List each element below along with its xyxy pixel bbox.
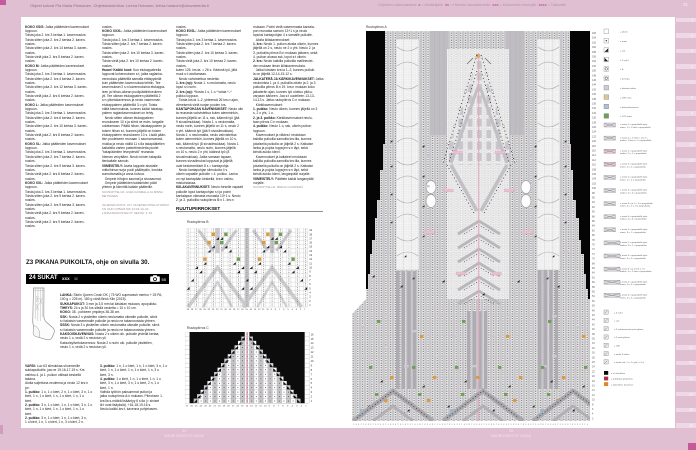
svg-text:3: 3 <box>311 390 313 394</box>
svg-text:eteen, 2 o, 2 s apupuikolta: eteen, 2 o, 2 s apupuikolta <box>620 165 646 168</box>
svg-text:6: 6 <box>548 424 549 425</box>
svg-text:5: 5 <box>427 424 428 425</box>
svg-text:8: 8 <box>493 424 494 425</box>
svg-text:7: 7 <box>311 372 313 376</box>
svg-text:20: 20 <box>592 375 595 378</box>
svg-text:0: 0 <box>538 424 539 425</box>
svg-text:12: 12 <box>255 405 258 407</box>
svg-text:= nosta 3 s ja 1 kert o, 3 s: = nosta 3 s ja 1 kert o, 3 s <box>620 267 646 270</box>
svg-text:9: 9 <box>516 424 517 425</box>
svg-text:8: 8 <box>395 424 396 425</box>
svg-text:78: 78 <box>592 239 595 242</box>
svg-text:21: 21 <box>220 309 223 311</box>
svg-text:8: 8 <box>592 403 594 406</box>
svg-text:2: 2 <box>309 298 311 302</box>
svg-text:6: 6 <box>572 424 573 425</box>
svg-text:2: 2 <box>484 424 485 425</box>
svg-text:8: 8 <box>309 273 311 277</box>
svg-text:9: 9 <box>417 424 418 425</box>
svg-text:166: 166 <box>592 32 597 35</box>
svg-text:taakse, 4 o, 4 s apupuikolta: taakse, 4 o, 4 s apupuikolta <box>620 218 647 221</box>
svg-text:6: 6 <box>283 309 285 311</box>
svg-text:6: 6 <box>425 424 426 425</box>
svg-text:72: 72 <box>592 253 595 256</box>
svg-text:eteen, 4 o, 4 s apupuikolta: eteen, 4 o, 4 s apupuikolta <box>620 283 646 286</box>
svg-text:1: 1 <box>305 405 307 407</box>
svg-text:= neulo 3 oikein: = neulo 3 oikein <box>614 354 630 356</box>
svg-text:= lk, linjas: = lk, linjas <box>620 79 631 81</box>
svg-text:7: 7 <box>545 424 546 425</box>
svg-text:= nosta 4 s apupuikolle työn: = nosta 4 s apupuikolle työn <box>620 215 648 218</box>
svg-text:22: 22 <box>592 370 595 373</box>
svg-text:2: 2 <box>557 424 558 425</box>
svg-text:9: 9 <box>311 363 313 367</box>
svg-text:16: 16 <box>311 332 314 336</box>
svg-text:146: 146 <box>592 79 597 82</box>
svg-text:142: 142 <box>592 88 597 91</box>
svg-text:0: 0 <box>489 424 490 425</box>
svg-text:= nosta 2 s, 1 kiert o, ota 2: = nosta 2 s, 1 kiert o, ota 2 s <box>620 136 648 139</box>
svg-text:26: 26 <box>199 309 202 311</box>
svg-text:= nosta 2 s apupuikolle työn: = nosta 2 s apupuikolle työn <box>620 176 648 179</box>
svg-text:= LSF nurin: = LSF nurin <box>620 96 632 99</box>
svg-text:52: 52 <box>592 300 595 303</box>
svg-text:= nosta 3 s apupuikolle työn: = nosta 3 s apupuikolle työn <box>620 254 648 257</box>
svg-text:132: 132 <box>592 112 597 115</box>
svg-text:46: 46 <box>592 314 595 317</box>
svg-text:104: 104 <box>592 178 597 181</box>
svg-text:= nurin: = nurin <box>620 40 628 43</box>
svg-text:16: 16 <box>236 405 239 407</box>
svg-text:13: 13 <box>311 345 314 349</box>
svg-text:15: 15 <box>241 405 244 407</box>
svg-text:27: 27 <box>186 405 189 407</box>
svg-text:144: 144 <box>592 84 597 87</box>
svg-text:= LSD: = LSD <box>614 346 621 348</box>
svg-text:1: 1 <box>412 424 413 425</box>
svg-text:0: 0 <box>587 424 588 425</box>
svg-text:4: 4 <box>528 424 529 425</box>
svg-text:17: 17 <box>237 309 240 311</box>
svg-text:11: 11 <box>309 261 312 265</box>
svg-text:122: 122 <box>592 135 597 138</box>
svg-text:8: 8 <box>543 424 544 425</box>
svg-text:9: 9 <box>565 424 566 425</box>
svg-text:70: 70 <box>592 258 595 261</box>
svg-text:4: 4 <box>479 424 480 425</box>
svg-text:27: 27 <box>195 309 198 311</box>
svg-text:7: 7 <box>398 424 399 425</box>
svg-text:2: 2 <box>385 424 386 425</box>
svg-text:74: 74 <box>592 248 595 251</box>
svg-text:26: 26 <box>190 405 193 407</box>
svg-text:= kaksoiskavennus: = kaksoiskavennus <box>620 107 639 109</box>
svg-text:164: 164 <box>592 37 597 40</box>
svg-text:3: 3 <box>296 405 298 407</box>
svg-text:0: 0 <box>464 424 465 425</box>
svg-text:136: 136 <box>592 103 597 106</box>
svg-text:28: 28 <box>191 309 194 311</box>
svg-text:34: 34 <box>592 342 595 345</box>
svg-text:17: 17 <box>309 236 312 240</box>
svg-text:= kaksinkert. kavennus: = kaksinkert. kavennus <box>611 383 634 386</box>
svg-text:90: 90 <box>592 211 595 214</box>
svg-text:5: 5 <box>309 286 311 290</box>
svg-text:92: 92 <box>592 206 595 209</box>
svg-text:7: 7 <box>373 424 374 425</box>
svg-text:1: 1 <box>511 424 512 425</box>
svg-text:24: 24 <box>592 366 595 369</box>
svg-text:1: 1 <box>437 424 438 425</box>
svg-text:1: 1 <box>535 424 536 425</box>
svg-text:114: 114 <box>592 154 596 157</box>
svg-text:158: 158 <box>592 51 597 54</box>
svg-text:24: 24 <box>208 309 211 311</box>
svg-text:9: 9 <box>368 424 369 425</box>
svg-text:3: 3 <box>530 424 531 425</box>
svg-text:126: 126 <box>592 126 597 129</box>
svg-text:15: 15 <box>309 244 312 248</box>
svg-text:44: 44 <box>592 319 595 322</box>
svg-text:eteen, 1 o, 1 kiert o apupuiko: eteen, 1 o, 1 kiert o apupuikolta <box>620 126 651 129</box>
svg-text:162: 162 <box>592 41 597 44</box>
svg-text:7: 7 <box>278 405 280 407</box>
svg-text:14: 14 <box>592 389 595 392</box>
svg-text:58: 58 <box>592 286 595 289</box>
svg-text:4: 4 <box>430 424 431 425</box>
svg-text:18: 18 <box>227 405 230 407</box>
svg-text:128: 128 <box>592 121 597 124</box>
svg-text:5: 5 <box>575 424 576 425</box>
svg-text:eteen, 4 o, 3 s apupuikolta: eteen, 4 o, 3 s apupuikolta <box>620 296 646 299</box>
svg-text:18: 18 <box>592 380 595 383</box>
svg-text:24: 24 <box>200 405 203 407</box>
svg-text:94: 94 <box>592 201 595 204</box>
svg-text:12: 12 <box>258 309 261 311</box>
svg-text:29: 29 <box>187 309 190 311</box>
svg-text:42: 42 <box>592 323 595 326</box>
svg-text:12: 12 <box>309 257 312 261</box>
svg-text:54: 54 <box>592 295 595 298</box>
svg-text:96: 96 <box>592 197 595 200</box>
svg-text:5: 5 <box>287 405 289 407</box>
svg-text:4: 4 <box>309 290 311 294</box>
svg-text:6: 6 <box>474 424 475 425</box>
svg-text:88: 88 <box>592 215 595 218</box>
svg-text:9: 9 <box>442 424 443 425</box>
svg-text:19: 19 <box>309 228 312 232</box>
svg-text:5: 5 <box>311 381 313 385</box>
svg-text:160: 160 <box>592 46 597 49</box>
svg-text:80: 80 <box>592 234 595 237</box>
svg-text:50: 50 <box>592 305 595 308</box>
svg-text:102: 102 <box>592 182 597 185</box>
svg-text:= neulo ssk, 1 o, 2 o yht (+ 3: = neulo ssk, 1 o, 2 o yht (+ 3 s) <box>614 361 644 364</box>
svg-text:9: 9 <box>269 405 271 407</box>
svg-text:19: 19 <box>229 309 232 311</box>
svg-text:1: 1 <box>311 399 313 403</box>
svg-text:1: 1 <box>584 424 585 425</box>
svg-text:7: 7 <box>471 424 472 425</box>
svg-text:14: 14 <box>250 309 253 311</box>
svg-text:1: 1 <box>388 424 389 425</box>
svg-text:10: 10 <box>592 399 595 402</box>
svg-text:32: 32 <box>592 347 595 350</box>
svg-text:21: 21 <box>213 405 216 407</box>
svg-text:15: 15 <box>245 309 248 311</box>
svg-text:140: 140 <box>592 93 597 96</box>
svg-text:23: 23 <box>204 405 207 407</box>
svg-text:= nosta 3 s apupuikolle työn: = nosta 3 s apupuikolle työn <box>620 189 648 192</box>
svg-text:3: 3 <box>555 424 556 425</box>
svg-text:18: 18 <box>309 232 312 236</box>
svg-text:110: 110 <box>592 164 596 167</box>
svg-text:120: 120 <box>592 140 597 143</box>
svg-text:= 2 o yht: = 2 o yht <box>620 59 629 62</box>
svg-text:= oikein: = oikein <box>620 32 628 34</box>
svg-text:2: 2 <box>533 424 534 425</box>
svg-text:3: 3 <box>481 424 482 425</box>
svg-text:84: 84 <box>592 225 595 228</box>
svg-text:6: 6 <box>449 424 450 425</box>
svg-text:8: 8 <box>420 424 421 425</box>
svg-text:5: 5 <box>476 424 477 425</box>
svg-text:150: 150 <box>592 70 597 73</box>
svg-text:10: 10 <box>311 359 314 363</box>
svg-text:7: 7 <box>447 424 448 425</box>
svg-text:4: 4 <box>292 405 294 407</box>
svg-text:2: 2 <box>301 405 303 407</box>
svg-text:eteen, 3 o, 1 s apupuikolta: eteen, 3 o, 1 s apupuikolta <box>620 231 646 234</box>
svg-text:16: 16 <box>241 309 244 311</box>
svg-text:9: 9 <box>309 269 311 273</box>
svg-text:6: 6 <box>400 424 401 425</box>
svg-text:3: 3 <box>407 424 408 425</box>
svg-text:98: 98 <box>592 192 595 195</box>
svg-text:10: 10 <box>309 265 312 269</box>
svg-text:0: 0 <box>390 424 391 425</box>
svg-text:= nosta 4 s apupuikolle työn: = nosta 4 s apupuikolle työn <box>620 294 648 297</box>
svg-text:4: 4 <box>503 424 504 425</box>
svg-text:112: 112 <box>592 159 596 162</box>
svg-text:5: 5 <box>550 424 551 425</box>
svg-text:108: 108 <box>592 168 597 171</box>
svg-text:16: 16 <box>309 240 312 244</box>
svg-text:6: 6 <box>498 424 499 425</box>
svg-text:0: 0 <box>513 424 514 425</box>
svg-text:2: 2 <box>459 424 460 425</box>
svg-text:1: 1 <box>309 303 311 307</box>
svg-text:9: 9 <box>393 424 394 425</box>
svg-text:62: 62 <box>592 276 595 279</box>
svg-text:66: 66 <box>592 267 595 270</box>
svg-text:118: 118 <box>592 145 596 148</box>
svg-text:= CO2 nurin: = CO2 nurin <box>620 115 633 118</box>
svg-text:3: 3 <box>506 424 507 425</box>
svg-text:3: 3 <box>383 424 384 425</box>
svg-text:18: 18 <box>233 309 236 311</box>
svg-text:1: 1 <box>363 424 364 425</box>
svg-text:4: 4 <box>553 424 554 425</box>
svg-text:= nosta 4 s apupuikolle työn: = nosta 4 s apupuikolle työn <box>620 280 648 283</box>
svg-text:9: 9 <box>491 424 492 425</box>
svg-text:60: 60 <box>592 281 595 284</box>
svg-text:10: 10 <box>264 405 267 407</box>
svg-text:= kiertäen oikein: = kiertäen oikein <box>620 87 637 90</box>
svg-text:4: 4 <box>292 309 294 311</box>
svg-text:13: 13 <box>254 309 257 311</box>
svg-text:= nosta 1 s apupuikolle työn: = nosta 1 s apupuikolle työn <box>620 241 648 244</box>
svg-text:0: 0 <box>562 424 563 425</box>
svg-text:eteen, 3 o, 3 s apupuikolta: eteen, 3 o, 3 s apupuikolta <box>620 257 646 260</box>
svg-text:= ei silmukkaa: = ei silmukkaa <box>611 373 626 375</box>
svg-text:130: 130 <box>592 117 597 120</box>
svg-text:30: 30 <box>592 352 595 355</box>
svg-text:14: 14 <box>246 405 249 407</box>
svg-text:22: 22 <box>216 309 219 311</box>
svg-text:= nosta 1 s apupuikolle työn: = nosta 1 s apupuikolle työn <box>620 149 648 152</box>
svg-text:2: 2 <box>361 424 362 425</box>
svg-text:6: 6 <box>309 282 311 286</box>
svg-text:1: 1 <box>304 309 306 311</box>
svg-text:4: 4 <box>356 424 357 425</box>
svg-text:= 2 nurin yhteen: = 2 nurin yhteen <box>614 336 631 339</box>
svg-text:14: 14 <box>311 341 314 345</box>
svg-text:12: 12 <box>592 394 595 397</box>
svg-text:13: 13 <box>309 253 312 257</box>
svg-text:19: 19 <box>223 405 226 407</box>
svg-text:3: 3 <box>580 424 581 425</box>
svg-text:= lk: = lk <box>620 69 624 71</box>
svg-text:taakse, 3 o, 1 kiert o apupuik: taakse, 3 o, 1 kiert o apupuikolta <box>620 270 652 273</box>
svg-text:134: 134 <box>592 107 597 110</box>
svg-text:4: 4 <box>577 424 578 425</box>
svg-text:2: 2 <box>508 424 509 425</box>
svg-text:40: 40 <box>592 328 595 331</box>
svg-text:6: 6 <box>523 424 524 425</box>
svg-text:12: 12 <box>311 350 314 354</box>
svg-text:20: 20 <box>224 309 227 311</box>
svg-text:124: 124 <box>592 131 597 134</box>
svg-text:36: 36 <box>592 338 595 341</box>
svg-text:2: 2 <box>592 417 594 420</box>
svg-text:5: 5 <box>402 424 403 425</box>
svg-text:2: 2 <box>582 424 583 425</box>
svg-text:6: 6 <box>282 405 284 407</box>
svg-text:148: 148 <box>592 74 597 77</box>
svg-text:8: 8 <box>567 424 568 425</box>
svg-text:7: 7 <box>496 424 497 425</box>
svg-text:26: 26 <box>592 361 595 364</box>
svg-text:eteen, 1 o, 2 o apupuikolta: eteen, 1 o, 2 o apupuikolta <box>620 178 647 181</box>
svg-text:0: 0 <box>366 424 367 425</box>
svg-text:25: 25 <box>195 405 198 407</box>
svg-text:6: 6 <box>592 408 594 411</box>
svg-text:28: 28 <box>592 356 595 359</box>
svg-text:5: 5 <box>452 424 453 425</box>
svg-text:56: 56 <box>592 291 595 294</box>
svg-text:48: 48 <box>592 309 595 312</box>
svg-text:eteen, 3 o, 1 n, 3 o apupuikol: eteen, 3 o, 1 n, 3 o apupuikolta <box>620 205 651 208</box>
svg-text:5: 5 <box>287 309 289 311</box>
svg-text:20: 20 <box>218 405 221 407</box>
svg-text:6: 6 <box>311 376 313 380</box>
svg-text:7: 7 <box>521 424 522 425</box>
svg-text:138: 138 <box>592 98 597 101</box>
svg-text:10: 10 <box>266 309 269 311</box>
svg-text:11: 11 <box>259 405 262 407</box>
svg-text:154: 154 <box>592 60 597 63</box>
svg-text:8: 8 <box>273 405 275 407</box>
svg-text:5: 5 <box>378 424 379 425</box>
svg-text:15: 15 <box>311 336 314 340</box>
svg-text:16: 16 <box>592 385 595 388</box>
svg-text:2: 2 <box>410 424 411 425</box>
svg-text:taakse, 3 o, 3 s apupuikolta: taakse, 3 o, 3 s apupuikolta <box>620 192 647 195</box>
svg-text:5: 5 <box>353 424 354 425</box>
svg-text:4: 4 <box>405 424 406 425</box>
svg-text:38: 38 <box>592 333 595 336</box>
svg-text:11: 11 <box>262 309 265 311</box>
svg-text:1: 1 <box>486 424 487 425</box>
svg-text:9: 9 <box>540 424 541 425</box>
svg-text:= ssk: = ssk <box>614 321 620 323</box>
svg-text:9: 9 <box>271 309 273 311</box>
svg-text:1: 1 <box>461 424 462 425</box>
svg-text:25: 25 <box>203 309 206 311</box>
svg-text:7: 7 <box>279 309 281 311</box>
svg-text:2: 2 <box>300 309 302 311</box>
svg-text:7: 7 <box>309 278 311 282</box>
svg-text:= nosta 1 s apupuikolle työn: = nosta 1 s apupuikolle työn <box>620 228 648 231</box>
svg-text:= 2 sukanvaresta nurin yhteen: = 2 sukanvaresta nurin yhteen <box>614 328 644 331</box>
svg-text:3: 3 <box>309 294 311 298</box>
svg-text:= ssk: = ssk <box>620 50 626 52</box>
svg-text:8: 8 <box>518 424 519 425</box>
svg-text:22: 22 <box>209 405 212 407</box>
svg-text:4: 4 <box>454 424 455 425</box>
svg-text:106: 106 <box>592 173 597 176</box>
svg-text:82: 82 <box>592 229 595 232</box>
svg-text:3: 3 <box>457 424 458 425</box>
svg-text:= puikkojen ganjanhsu: = puikkojen ganjanhsu <box>611 379 634 381</box>
svg-text:6: 6 <box>375 424 376 425</box>
svg-text:taakse, 3 o, 1 s apupuikolta: taakse, 3 o, 1 s apupuikolta <box>620 244 647 247</box>
svg-text:86: 86 <box>592 220 595 223</box>
svg-text:4: 4 <box>380 424 381 425</box>
svg-text:100: 100 <box>592 187 597 190</box>
svg-text:taakse, 1 kiert o, 2 o apupuik: taakse, 1 kiert o, 2 o apupuikolta <box>620 139 652 142</box>
svg-text:= nosta 3 s ja 1 s, 3 o apupui: = nosta 3 s ja 1 s, 3 o apupuikolta <box>620 202 653 205</box>
svg-text:3: 3 <box>358 424 359 425</box>
svg-text:5: 5 <box>525 424 526 425</box>
svg-text:7: 7 <box>422 424 423 425</box>
svg-text:152: 152 <box>592 65 597 68</box>
svg-text:8: 8 <box>275 309 277 311</box>
svg-text:68: 68 <box>592 262 595 265</box>
svg-text:8: 8 <box>370 424 371 425</box>
svg-text:9: 9 <box>466 424 467 425</box>
svg-text:5: 5 <box>501 424 502 425</box>
svg-text:3: 3 <box>296 309 298 311</box>
svg-text:= nosta 2 s apupuikolle työn: = nosta 2 s apupuikolle työn <box>620 163 648 166</box>
svg-text:17: 17 <box>232 405 235 407</box>
svg-text:11: 11 <box>311 354 314 358</box>
svg-text:13: 13 <box>250 405 253 407</box>
svg-text:2: 2 <box>311 394 313 398</box>
svg-text:8: 8 <box>469 424 470 425</box>
svg-text:4: 4 <box>311 385 313 389</box>
